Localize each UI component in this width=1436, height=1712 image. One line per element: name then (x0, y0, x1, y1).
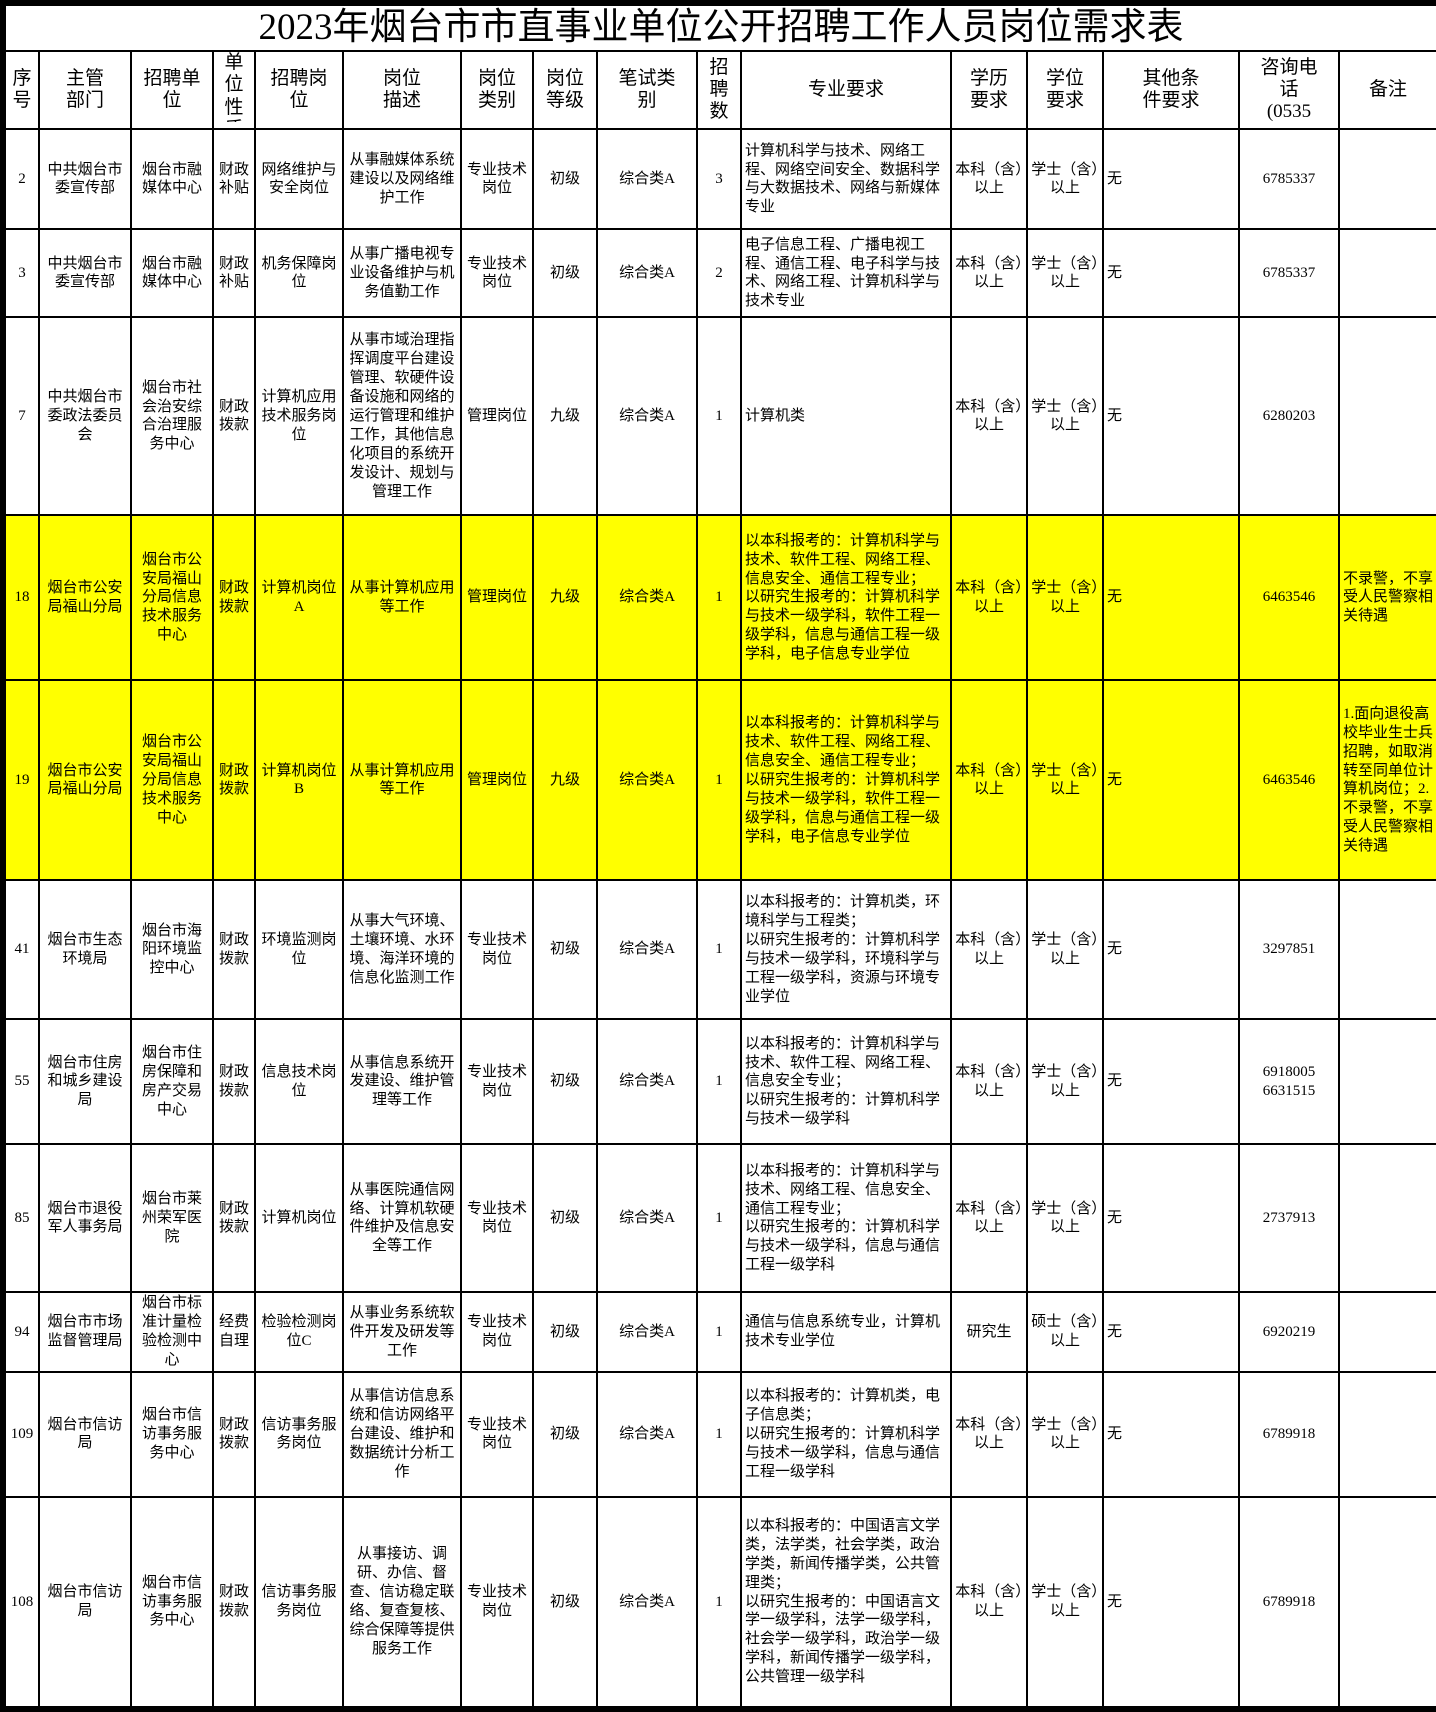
department-cell: 烟台市公安局福山分局 (39, 680, 131, 880)
level-cell: 初级 (533, 229, 597, 317)
description-cell: 从事融媒体系统建设以及网络维护工作 (343, 129, 461, 229)
unit-cell: 烟台市莱州荣军医院 (131, 1144, 213, 1292)
description-cell: 从事信访信息系统和信访网络平台建设、维护和数据统计分析工作 (343, 1372, 461, 1497)
header-unit: 招聘单 位 (131, 51, 213, 129)
table-row: 3 中共烟台市委宣传部 烟台市融媒体中心 财政补贴 机务保障岗位 从事广播电视专… (3, 229, 1436, 317)
description-cell: 从事市域治理指挥调度平台建设管理、软硬件设备设施和网络的运行管理和维护工作，其他… (343, 317, 461, 515)
degree-cell: 学士（含）以上 (1027, 129, 1103, 229)
page-title: 2023年烟台市市直事业单位公开招聘工作人员岗位需求表 (3, 3, 1436, 51)
table-row: 55 烟台市住房和城乡建设局 烟台市住房保障和房产交易中心 财政拨款 信息技术岗… (3, 1019, 1436, 1144)
phone-cell: 6789918 (1239, 1497, 1339, 1709)
department-cell: 烟台市信访局 (39, 1497, 131, 1709)
note-cell (1339, 1372, 1436, 1497)
post-cell: 计算机岗位A (255, 515, 343, 680)
other-requirement-cell: 无 (1103, 1019, 1239, 1144)
unit-nature-cell: 财政补贴 (213, 229, 255, 317)
description-cell: 从事信息系统开发建设、维护管理等工作 (343, 1019, 461, 1144)
unit-nature-cell: 财政拨款 (213, 1372, 255, 1497)
unit-cell: 烟台市信访事务服务中心 (131, 1497, 213, 1709)
level-cell: 初级 (533, 1144, 597, 1292)
department-cell: 烟台市退役军人事务局 (39, 1144, 131, 1292)
post-cell: 信访事务服务岗位 (255, 1372, 343, 1497)
serial-cell: 7 (3, 317, 39, 515)
category-cell: 管理岗位 (461, 680, 533, 880)
category-cell: 专业技术岗位 (461, 1292, 533, 1372)
title-row: 2023年烟台市市直事业单位公开招聘工作人员岗位需求表 (3, 3, 1436, 51)
phone-cell: 6918005 6631515 (1239, 1019, 1339, 1144)
note-cell (1339, 129, 1436, 229)
education-cell: 本科（含）以上 (951, 680, 1027, 880)
post-cell: 信息技术岗位 (255, 1019, 343, 1144)
description-cell: 从事接访、调研、办信、督查、信访稳定联络、复查复核、综合保障等提供服务工作 (343, 1497, 461, 1709)
education-cell: 本科（含）以上 (951, 1144, 1027, 1292)
education-cell: 本科（含）以上 (951, 1372, 1027, 1497)
recruitment-table: 2023年烟台市市直事业单位公开招聘工作人员岗位需求表 序 号 主管 部门 招聘… (0, 0, 1436, 1712)
table-row: 19 烟台市公安局福山分局 烟台市公安局福山分局信息技术服务中心 财政拨款 计算… (3, 680, 1436, 880)
level-cell: 初级 (533, 1497, 597, 1709)
post-cell: 计算机岗位 (255, 1144, 343, 1292)
note-cell (1339, 880, 1436, 1019)
exam-type-cell: 综合类A (597, 1497, 697, 1709)
description-cell: 从事广播电视专业设备维护与机务值勤工作 (343, 229, 461, 317)
table-row: 18 烟台市公安局福山分局 烟台市公安局福山分局信息技术服务中心 财政拨款 计算… (3, 515, 1436, 680)
major-cell: 以本科报考的：计算机科学与技术、网络工程、信息安全、通信工程专业； 以研究生报考… (741, 1144, 951, 1292)
department-cell: 烟台市市场监督管理局 (39, 1292, 131, 1372)
header-unit-nature: 单 位 性 质 (213, 51, 255, 129)
header-count: 招 聘 数 (697, 51, 741, 129)
header-education: 学历 要求 (951, 51, 1027, 129)
exam-type-cell: 综合类A (597, 515, 697, 680)
other-requirement-cell: 无 (1103, 129, 1239, 229)
phone-cell: 6785337 (1239, 129, 1339, 229)
header-category: 岗位 类别 (461, 51, 533, 129)
count-cell: 1 (697, 880, 741, 1019)
department-cell: 烟台市住房和城乡建设局 (39, 1019, 131, 1144)
post-cell: 信访事务服务岗位 (255, 1497, 343, 1709)
education-cell: 本科（含）以上 (951, 1497, 1027, 1709)
serial-cell: 2 (3, 129, 39, 229)
unit-cell: 烟台市融媒体中心 (131, 129, 213, 229)
description-cell: 从事计算机应用等工作 (343, 680, 461, 880)
phone-cell: 6280203 (1239, 317, 1339, 515)
education-cell: 本科（含）以上 (951, 317, 1027, 515)
note-cell (1339, 1292, 1436, 1372)
other-requirement-cell: 无 (1103, 1292, 1239, 1372)
serial-cell: 41 (3, 880, 39, 1019)
table-row: 2 中共烟台市委宣传部 烟台市融媒体中心 财政补贴 网络维护与安全岗位 从事融媒… (3, 129, 1436, 229)
education-cell: 研究生 (951, 1292, 1027, 1372)
level-cell: 初级 (533, 1019, 597, 1144)
header-other-requirement: 其他条 件要求 (1103, 51, 1239, 129)
unit-cell: 烟台市公安局福山分局信息技术服务中心 (131, 680, 213, 880)
category-cell: 专业技术岗位 (461, 880, 533, 1019)
unit-nature-cell: 财政拨款 (213, 1144, 255, 1292)
phone-cell: 3297851 (1239, 880, 1339, 1019)
major-cell: 以本科报考的：计算机类，电子信息类； 以研究生报考的：计算机科学与技术一级学科，… (741, 1372, 951, 1497)
post-cell: 环境监测岗位 (255, 880, 343, 1019)
post-cell: 检验检测岗位C (255, 1292, 343, 1372)
header-note: 备注 (1339, 51, 1436, 129)
unit-nature-cell: 财政补贴 (213, 129, 255, 229)
count-cell: 1 (697, 317, 741, 515)
other-requirement-cell: 无 (1103, 1144, 1239, 1292)
unit-cell: 烟台市公安局福山分局信息技术服务中心 (131, 515, 213, 680)
major-cell: 电子信息工程、广播电视工程、通信工程、电子科学与技术、网络工程、计算机科学与技术… (741, 229, 951, 317)
table-row: 7 中共烟台市委政法委员会 烟台市社会治安综合治理服务中心 财政拨款 计算机应用… (3, 317, 1436, 515)
category-cell: 专业技术岗位 (461, 1497, 533, 1709)
phone-cell: 6785337 (1239, 229, 1339, 317)
exam-type-cell: 综合类A (597, 317, 697, 515)
unit-cell: 烟台市海阳环境监控中心 (131, 880, 213, 1019)
table-row: 108 烟台市信访局 烟台市信访事务服务中心 财政拨款 信访事务服务岗位 从事接… (3, 1497, 1436, 1709)
level-cell: 九级 (533, 515, 597, 680)
unit-nature-cell: 经费自理 (213, 1292, 255, 1372)
serial-cell: 18 (3, 515, 39, 680)
count-cell: 1 (697, 1144, 741, 1292)
education-cell: 本科（含）以上 (951, 129, 1027, 229)
major-cell: 以本科报考的：中国语言文学类，法学类，社会学类，政治学类，新闻传播学类，公共管理… (741, 1497, 951, 1709)
header-department: 主管 部门 (39, 51, 131, 129)
other-requirement-cell: 无 (1103, 880, 1239, 1019)
post-cell: 网络维护与安全岗位 (255, 129, 343, 229)
phone-cell: 6463546 (1239, 515, 1339, 680)
degree-cell: 学士（含）以上 (1027, 880, 1103, 1019)
note-cell (1339, 1497, 1436, 1709)
unit-nature-cell: 财政拨款 (213, 317, 255, 515)
exam-type-cell: 综合类A (597, 1019, 697, 1144)
major-cell: 计算机科学与技术、网络工程、网络空间安全、数据科学与大数据技术、网络与新媒体专业 (741, 129, 951, 229)
exam-type-cell: 综合类A (597, 880, 697, 1019)
serial-cell: 94 (3, 1292, 39, 1372)
other-requirement-cell: 无 (1103, 680, 1239, 880)
header-description: 岗位 描述 (343, 51, 461, 129)
exam-type-cell: 综合类A (597, 1144, 697, 1292)
unit-cell: 烟台市社会治安综合治理服务中心 (131, 317, 213, 515)
count-cell: 1 (697, 1372, 741, 1497)
unit-cell: 烟台市标准计量检验检测中心 (131, 1292, 213, 1372)
department-cell: 烟台市公安局福山分局 (39, 515, 131, 680)
degree-cell: 学士（含）以上 (1027, 229, 1103, 317)
degree-cell: 学士（含）以上 (1027, 317, 1103, 515)
note-cell: 1.面向退役高校毕业生士兵招聘，如取消转至同单位计算机岗位；2.不录警，不享受人… (1339, 680, 1436, 880)
description-cell: 从事大气环境、土壤环境、水环境、海洋环境的信息化监测工作 (343, 880, 461, 1019)
serial-cell: 55 (3, 1019, 39, 1144)
note-cell (1339, 1144, 1436, 1292)
degree-cell: 学士（含）以上 (1027, 515, 1103, 680)
unit-nature-cell: 财政拨款 (213, 680, 255, 880)
category-cell: 管理岗位 (461, 317, 533, 515)
header-level: 岗位 等级 (533, 51, 597, 129)
education-cell: 本科（含）以上 (951, 1019, 1027, 1144)
major-cell: 以本科报考的：计算机科学与技术、软件工程、网络工程、信息安全、通信工程专业； 以… (741, 680, 951, 880)
department-cell: 中共烟台市委宣传部 (39, 129, 131, 229)
major-cell: 通信与信息系统专业，计算机技术专业学位 (741, 1292, 951, 1372)
count-cell: 1 (697, 1019, 741, 1144)
note-cell (1339, 1019, 1436, 1144)
unit-nature-cell: 财政拨款 (213, 1019, 255, 1144)
category-cell: 专业技术岗位 (461, 1019, 533, 1144)
other-requirement-cell: 无 (1103, 317, 1239, 515)
count-cell: 2 (697, 229, 741, 317)
education-cell: 本科（含）以上 (951, 229, 1027, 317)
category-cell: 专业技术岗位 (461, 129, 533, 229)
level-cell: 九级 (533, 317, 597, 515)
table-row: 94 烟台市市场监督管理局 烟台市标准计量检验检测中心 经费自理 检验检测岗位C… (3, 1292, 1436, 1372)
header-row: 序 号 主管 部门 招聘单 位 单 位 性 质 招聘岗 位 岗位 描述 岗位 类… (3, 51, 1436, 129)
other-requirement-cell: 无 (1103, 1497, 1239, 1709)
phone-cell: 6789918 (1239, 1372, 1339, 1497)
serial-cell: 3 (3, 229, 39, 317)
degree-cell: 硕士（含）以上 (1027, 1292, 1103, 1372)
unit-nature-cell: 财政拨款 (213, 880, 255, 1019)
post-cell: 机务保障岗位 (255, 229, 343, 317)
level-cell: 九级 (533, 680, 597, 880)
degree-cell: 学士（含）以上 (1027, 1019, 1103, 1144)
phone-cell: 2737913 (1239, 1144, 1339, 1292)
unit-cell: 烟台市信访事务服务中心 (131, 1372, 213, 1497)
header-phone: 咨询电 话 (0535 (1239, 51, 1339, 129)
exam-type-cell: 综合类A (597, 129, 697, 229)
category-cell: 管理岗位 (461, 515, 533, 680)
degree-cell: 学士（含）以上 (1027, 1497, 1103, 1709)
unit-nature-cell: 财政拨款 (213, 515, 255, 680)
description-cell: 从事计算机应用等工作 (343, 515, 461, 680)
header-major: 专业要求 (741, 51, 951, 129)
department-cell: 烟台市生态环境局 (39, 880, 131, 1019)
major-cell: 以本科报考的：计算机科学与技术、软件工程、网络工程、信息安全、通信工程专业； 以… (741, 515, 951, 680)
category-cell: 专业技术岗位 (461, 1144, 533, 1292)
header-exam-type: 笔试类 别 (597, 51, 697, 129)
serial-cell: 19 (3, 680, 39, 880)
category-cell: 专业技术岗位 (461, 1372, 533, 1497)
level-cell: 初级 (533, 880, 597, 1019)
table-body: 2 中共烟台市委宣传部 烟台市融媒体中心 财政补贴 网络维护与安全岗位 从事融媒… (3, 129, 1436, 1709)
unit-cell: 烟台市住房保障和房产交易中心 (131, 1019, 213, 1144)
header-degree: 学位 要求 (1027, 51, 1103, 129)
count-cell: 1 (697, 680, 741, 880)
degree-cell: 学士（含）以上 (1027, 1144, 1103, 1292)
major-cell: 以本科报考的：计算机科学与技术、软件工程、网络工程、信息安全专业； 以研究生报考… (741, 1019, 951, 1144)
header-post: 招聘岗 位 (255, 51, 343, 129)
major-cell: 以本科报考的：计算机类，环境科学与工程类； 以研究生报考的：计算机科学与技术一级… (741, 880, 951, 1019)
exam-type-cell: 综合类A (597, 680, 697, 880)
phone-cell: 6920219 (1239, 1292, 1339, 1372)
serial-cell: 108 (3, 1497, 39, 1709)
header-unit-nature-text: 单 位 性 质 (224, 52, 243, 122)
table-row: 85 烟台市退役军人事务局 烟台市莱州荣军医院 财政拨款 计算机岗位 从事医院通… (3, 1144, 1436, 1292)
category-cell: 专业技术岗位 (461, 229, 533, 317)
other-requirement-cell: 无 (1103, 1372, 1239, 1497)
post-cell: 计算机岗位B (255, 680, 343, 880)
note-cell (1339, 229, 1436, 317)
department-cell: 中共烟台市委宣传部 (39, 229, 131, 317)
description-cell: 从事业务系统软件开发及研发等工作 (343, 1292, 461, 1372)
unit-cell: 烟台市融媒体中心 (131, 229, 213, 317)
level-cell: 初级 (533, 1372, 597, 1497)
education-cell: 本科（含）以上 (951, 880, 1027, 1019)
major-cell: 计算机类 (741, 317, 951, 515)
exam-type-cell: 综合类A (597, 1292, 697, 1372)
table-row: 41 烟台市生态环境局 烟台市海阳环境监控中心 财政拨款 环境监测岗位 从事大气… (3, 880, 1436, 1019)
serial-cell: 109 (3, 1372, 39, 1497)
post-cell: 计算机应用技术服务岗位 (255, 317, 343, 515)
level-cell: 初级 (533, 129, 597, 229)
count-cell: 3 (697, 129, 741, 229)
note-cell (1339, 317, 1436, 515)
note-cell: 不录警，不享受人民警察相关待遇 (1339, 515, 1436, 680)
department-cell: 烟台市信访局 (39, 1372, 131, 1497)
degree-cell: 学士（含）以上 (1027, 1372, 1103, 1497)
degree-cell: 学士（含）以上 (1027, 680, 1103, 880)
exam-type-cell: 综合类A (597, 229, 697, 317)
exam-type-cell: 综合类A (597, 1372, 697, 1497)
department-cell: 中共烟台市委政法委员会 (39, 317, 131, 515)
unit-nature-cell: 财政拨款 (213, 1497, 255, 1709)
header-serial: 序 号 (3, 51, 39, 129)
table-row: 109 烟台市信访局 烟台市信访事务服务中心 财政拨款 信访事务服务岗位 从事信… (3, 1372, 1436, 1497)
other-requirement-cell: 无 (1103, 229, 1239, 317)
count-cell: 1 (697, 1292, 741, 1372)
education-cell: 本科（含）以上 (951, 515, 1027, 680)
description-cell: 从事医院通信网络、计算机软硬件维护及信息安全等工作 (343, 1144, 461, 1292)
level-cell: 初级 (533, 1292, 597, 1372)
serial-cell: 85 (3, 1144, 39, 1292)
count-cell: 1 (697, 1497, 741, 1709)
phone-cell: 6463546 (1239, 680, 1339, 880)
other-requirement-cell: 无 (1103, 515, 1239, 680)
count-cell: 1 (697, 515, 741, 680)
